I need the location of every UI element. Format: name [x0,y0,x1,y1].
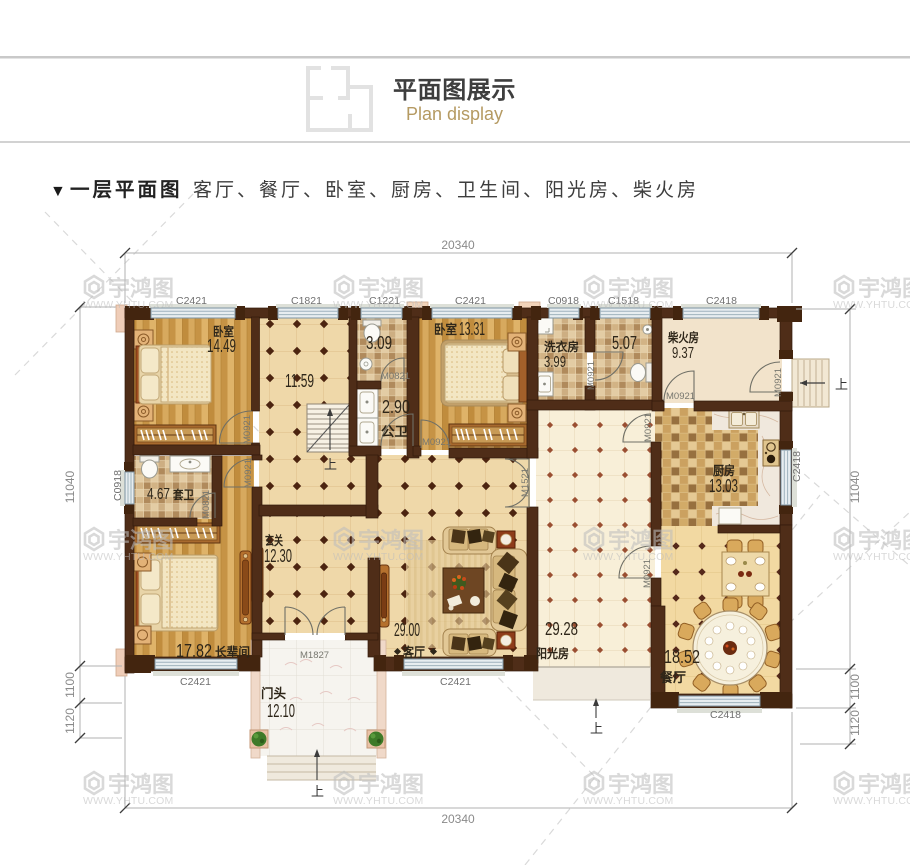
svg-text:上: 上 [311,784,324,799]
svg-text:13.31: 13.31 [459,319,485,339]
svg-text:M1521: M1521 [520,468,531,497]
svg-text:4.67: 4.67 [147,486,170,503]
svg-text:M0921: M0921 [422,437,451,448]
svg-text:卧室: 卧室 [434,322,457,337]
svg-text:Plan display: Plan display [406,104,503,124]
svg-text:20340: 20340 [441,812,475,826]
svg-text:C0918: C0918 [112,470,124,501]
svg-text:C2418: C2418 [706,295,737,307]
svg-text:公卫: 公卫 [381,424,408,439]
svg-text:M0921: M0921 [666,391,695,402]
svg-text:11.59: 11.59 [285,371,314,391]
svg-text:2.90: 2.90 [382,397,410,417]
svg-text:WWW.YHTU.COM: WWW.YHTU.COM [83,299,173,311]
svg-text:1100: 1100 [848,674,862,700]
svg-text:29.28: 29.28 [545,619,578,639]
svg-text:14.49: 14.49 [207,336,236,356]
svg-text:M0921: M0921 [642,559,653,588]
svg-text:套卫: 套卫 [172,487,194,502]
svg-text:29.00: 29.00 [394,620,420,640]
svg-text:M0821: M0821 [201,490,212,519]
svg-text:17.82: 17.82 [176,641,212,661]
svg-text:一层平面图: 一层平面图 [70,179,183,201]
svg-text:M1827: M1827 [300,650,329,661]
svg-text:M0921: M0921 [773,368,784,397]
svg-text:12.30: 12.30 [264,546,292,566]
svg-text:M0921: M0921 [242,415,253,444]
svg-text:宇鸿图: 宇鸿图 [108,276,174,301]
svg-text:1120: 1120 [63,708,77,734]
svg-text:9.37: 9.37 [672,345,694,362]
svg-text:11040: 11040 [848,470,862,503]
svg-text:▼: ▼ [50,183,66,200]
svg-text:M0921: M0921 [643,413,654,442]
svg-text:M0921: M0921 [243,459,254,488]
svg-text:C2421: C2421 [180,676,211,688]
svg-text:客厅: 客厅 [403,645,425,660]
svg-text:客厅、餐厅、卧室、厨房、卫生间、阳光房、柴火房: 客厅、餐厅、卧室、厨房、卫生间、阳光房、柴火房 [193,179,699,201]
svg-text:5.07: 5.07 [612,333,637,353]
svg-text:C0918: C0918 [548,295,579,307]
svg-text:长辈间: 长辈间 [215,644,250,659]
svg-text:11040: 11040 [63,470,77,503]
svg-text:3.99: 3.99 [544,354,566,371]
svg-text:1100: 1100 [63,672,77,698]
svg-text:M0821: M0821 [381,371,410,382]
svg-text:餐厅: 餐厅 [659,670,686,685]
svg-text:阳光房: 阳光房 [536,646,569,661]
svg-text:12.10: 12.10 [267,701,295,721]
svg-text:洗衣房: 洗衣房 [544,339,579,354]
svg-text:C2418: C2418 [791,451,803,482]
svg-text:C2421: C2421 [455,295,486,307]
svg-text:20340: 20340 [441,238,475,252]
svg-text:13.03: 13.03 [709,476,738,496]
svg-text:C1821: C1821 [291,295,322,307]
svg-text:上: 上 [835,377,848,392]
svg-text:C2421: C2421 [176,295,207,307]
svg-text:1120: 1120 [848,710,862,736]
svg-text:C2418: C2418 [710,709,741,721]
svg-text:门头: 门头 [261,686,286,701]
svg-text:M0921: M0921 [586,361,597,390]
svg-text:18.52: 18.52 [664,647,700,667]
svg-text:上: 上 [324,457,337,472]
svg-text:C2421: C2421 [440,676,471,688]
svg-text:3.09: 3.09 [366,333,392,353]
svg-text:上: 上 [590,721,603,736]
svg-text:平面图展示: 平面图展示 [393,77,516,104]
svg-text:柴火房: 柴火房 [667,330,699,345]
